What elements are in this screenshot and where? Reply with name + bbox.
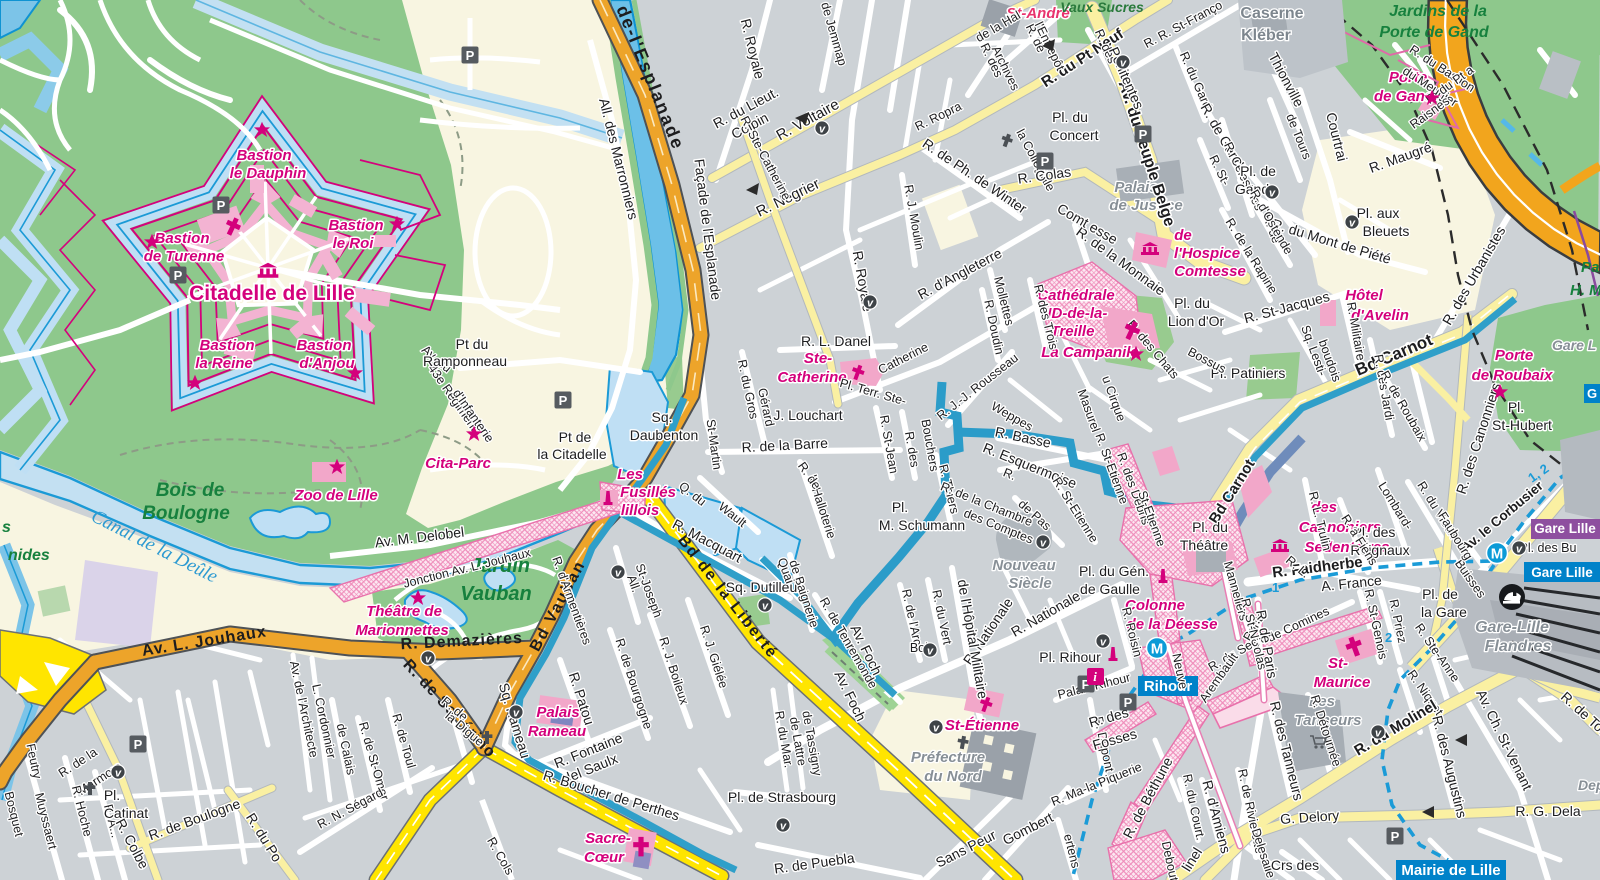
svg-text:Porte: Porte bbox=[1495, 347, 1533, 364]
svg-text:St-Hubert: St-Hubert bbox=[1492, 417, 1552, 433]
svg-text:Pl. du Gén.: Pl. du Gén. bbox=[1079, 563, 1149, 579]
svg-text:de Turenne: de Turenne bbox=[144, 248, 225, 265]
svg-text:Caserne: Caserne bbox=[1240, 5, 1303, 22]
svg-text:Pl. du: Pl. du bbox=[1174, 295, 1210, 311]
svg-text:Depa: Depa bbox=[1578, 777, 1600, 793]
svg-text:Cita-Parc: Cita-Parc bbox=[425, 455, 492, 472]
svg-text:Siècle: Siècle bbox=[1008, 575, 1051, 592]
svg-text:Pl.: Pl. bbox=[104, 787, 120, 803]
svg-text:la Reine: la Reine bbox=[195, 355, 253, 372]
svg-text:Kléber: Kléber bbox=[1241, 27, 1291, 44]
svg-text:de: de bbox=[1174, 227, 1192, 244]
svg-text:St-Étienne: St-Étienne bbox=[945, 717, 1019, 734]
svg-text:Concert: Concert bbox=[1049, 127, 1098, 143]
svg-text:de Gaulle: de Gaulle bbox=[1080, 581, 1140, 597]
svg-text:Comtesse: Comtesse bbox=[1174, 263, 1246, 280]
svg-text:Flandres: Flandres bbox=[1485, 638, 1552, 655]
svg-text:R. G. Dela: R. G. Dela bbox=[1515, 803, 1581, 819]
svg-text:Les: Les bbox=[617, 466, 643, 483]
svg-text:le Roi: le Roi bbox=[333, 235, 375, 252]
svg-text:Gare Lille: Gare Lille bbox=[1531, 565, 1593, 580]
svg-text:Sq.: Sq. bbox=[651, 409, 672, 425]
svg-text:de Roubaix: de Roubaix bbox=[1472, 367, 1554, 384]
svg-text:Ramponneau: Ramponneau bbox=[423, 353, 507, 369]
svg-text:Gare Lille: Gare Lille bbox=[1534, 521, 1596, 536]
svg-text:la Citadelle: la Citadelle bbox=[537, 446, 606, 462]
svg-text:Gare-Lille: Gare-Lille bbox=[1475, 619, 1549, 636]
svg-text:lillois: lillois bbox=[621, 502, 659, 519]
svg-text:Théâtre de: Théâtre de bbox=[366, 603, 442, 620]
svg-text:Pl. aux: Pl. aux bbox=[1357, 205, 1400, 221]
svg-text:Pl. de: Pl. de bbox=[1240, 163, 1276, 179]
svg-text:Pl.: Pl. bbox=[892, 499, 908, 515]
svg-text:Pl. Rihour: Pl. Rihour bbox=[1039, 649, 1101, 665]
svg-text:Jardins de la: Jardins de la bbox=[1389, 3, 1487, 20]
svg-text:Boulogne: Boulogne bbox=[142, 503, 230, 524]
svg-text:G: G bbox=[1587, 386, 1597, 401]
svg-text:Lion d'Or: Lion d'Or bbox=[1168, 313, 1225, 329]
svg-text:St-: St- bbox=[1328, 655, 1348, 672]
svg-text:Bois de: Bois de bbox=[156, 480, 225, 501]
svg-text:s: s bbox=[2, 519, 11, 536]
svg-text:Préfecture: Préfecture bbox=[911, 749, 985, 766]
svg-text:Daubenton: Daubenton bbox=[630, 427, 699, 443]
svg-text:Maurice: Maurice bbox=[1314, 674, 1371, 691]
svg-text:Crs des: Crs des bbox=[1271, 857, 1319, 873]
svg-text:Cœur: Cœur bbox=[584, 849, 625, 866]
svg-text:Pl. du: Pl. du bbox=[1192, 519, 1228, 535]
svg-text:Gare L: Gare L bbox=[1552, 337, 1596, 353]
svg-text:Nouveau: Nouveau bbox=[992, 557, 1055, 574]
svg-text:Bastion: Bastion bbox=[328, 217, 383, 234]
svg-text:Vaux Sucres: Vaux Sucres bbox=[1060, 0, 1144, 15]
svg-text:Bastion: Bastion bbox=[154, 230, 209, 247]
svg-text:Rameau: Rameau bbox=[528, 723, 586, 740]
svg-text:H. Ma: H. Ma bbox=[1570, 282, 1600, 299]
svg-text:l'Hospice: l'Hospice bbox=[1174, 245, 1240, 262]
svg-text:Pt du: Pt du bbox=[456, 336, 489, 352]
svg-text:Théâtre: Théâtre bbox=[1180, 537, 1228, 553]
svg-text:la Gare: la Gare bbox=[1421, 604, 1467, 620]
svg-text:du Nord: du Nord bbox=[924, 768, 982, 785]
svg-text:Fusillés: Fusillés bbox=[620, 484, 676, 501]
svg-text:Pt de: Pt de bbox=[559, 429, 592, 445]
svg-text:Pl. de Strasbourg: Pl. de Strasbourg bbox=[728, 789, 836, 805]
svg-text:Bastion: Bastion bbox=[236, 147, 291, 164]
svg-text:i: i bbox=[1093, 669, 1097, 684]
svg-text:2: 2 bbox=[1385, 630, 1392, 645]
svg-text:Citadelle de Lille: Citadelle de Lille bbox=[189, 282, 355, 305]
svg-text:1: 1 bbox=[1272, 580, 1279, 595]
svg-text:Bastion: Bastion bbox=[296, 337, 351, 354]
svg-text:Porte de Gand: Porte de Gand bbox=[1379, 24, 1490, 41]
svg-text:R. L. Danel: R. L. Danel bbox=[801, 333, 871, 349]
svg-text:nides: nides bbox=[8, 547, 50, 564]
svg-text:Pl.: Pl. bbox=[1508, 399, 1524, 415]
svg-text:Ste-: Ste- bbox=[804, 350, 832, 367]
svg-text:Pl. de: Pl. de bbox=[1422, 586, 1458, 602]
svg-text:Pl. des Bu: Pl. des Bu bbox=[1520, 541, 1577, 555]
svg-text:Palais: Palais bbox=[536, 704, 579, 721]
svg-text:Mairie de Lille: Mairie de Lille bbox=[1401, 862, 1500, 879]
svg-text:Catherine: Catherine bbox=[777, 369, 846, 386]
svg-text:d'Anjou: d'Anjou bbox=[299, 355, 354, 372]
svg-text:M. Schumann: M. Schumann bbox=[879, 517, 965, 533]
svg-text:Vauban: Vauban bbox=[460, 583, 532, 605]
svg-text:J. Louchart: J. Louchart bbox=[773, 407, 842, 423]
svg-text:Bastion: Bastion bbox=[199, 337, 254, 354]
svg-text:Sacre-: Sacre- bbox=[585, 830, 631, 847]
svg-text:Zoo de Lille: Zoo de Lille bbox=[293, 487, 377, 504]
svg-text:Bleuets: Bleuets bbox=[1363, 223, 1410, 239]
svg-text:Par: Par bbox=[1581, 259, 1600, 276]
svg-text:de la Déesse: de la Déesse bbox=[1127, 616, 1218, 633]
svg-text:Pl. du: Pl. du bbox=[1052, 109, 1088, 125]
svg-text:le Dauphin: le Dauphin bbox=[230, 165, 307, 182]
